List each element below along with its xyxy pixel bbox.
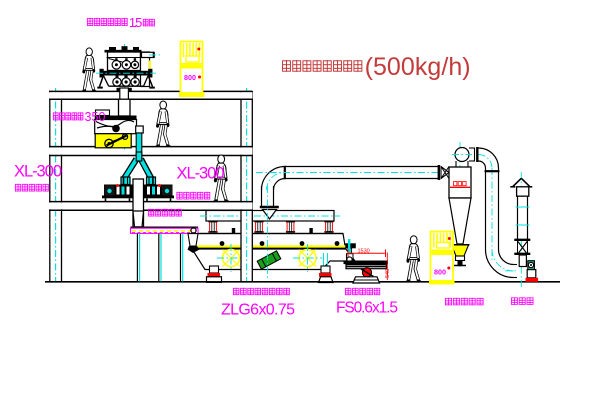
svg-text:350: 350 bbox=[85, 110, 106, 124]
svg-text:540: 540 bbox=[385, 269, 391, 278]
svg-text:1530: 1530 bbox=[358, 248, 370, 254]
svg-text:(500kg/h): (500kg/h) bbox=[365, 53, 471, 81]
svg-text:ZLG6x0.75: ZLG6x0.75 bbox=[221, 302, 295, 319]
svg-text:800: 800 bbox=[184, 73, 196, 82]
svg-text:XL-300: XL-300 bbox=[14, 163, 62, 181]
svg-text:800: 800 bbox=[434, 268, 446, 277]
svg-text:FS0.6x1.5: FS0.6x1.5 bbox=[336, 300, 398, 317]
svg-text:1.5: 1.5 bbox=[129, 15, 143, 30]
svg-text:XL-300: XL-300 bbox=[177, 165, 225, 183]
